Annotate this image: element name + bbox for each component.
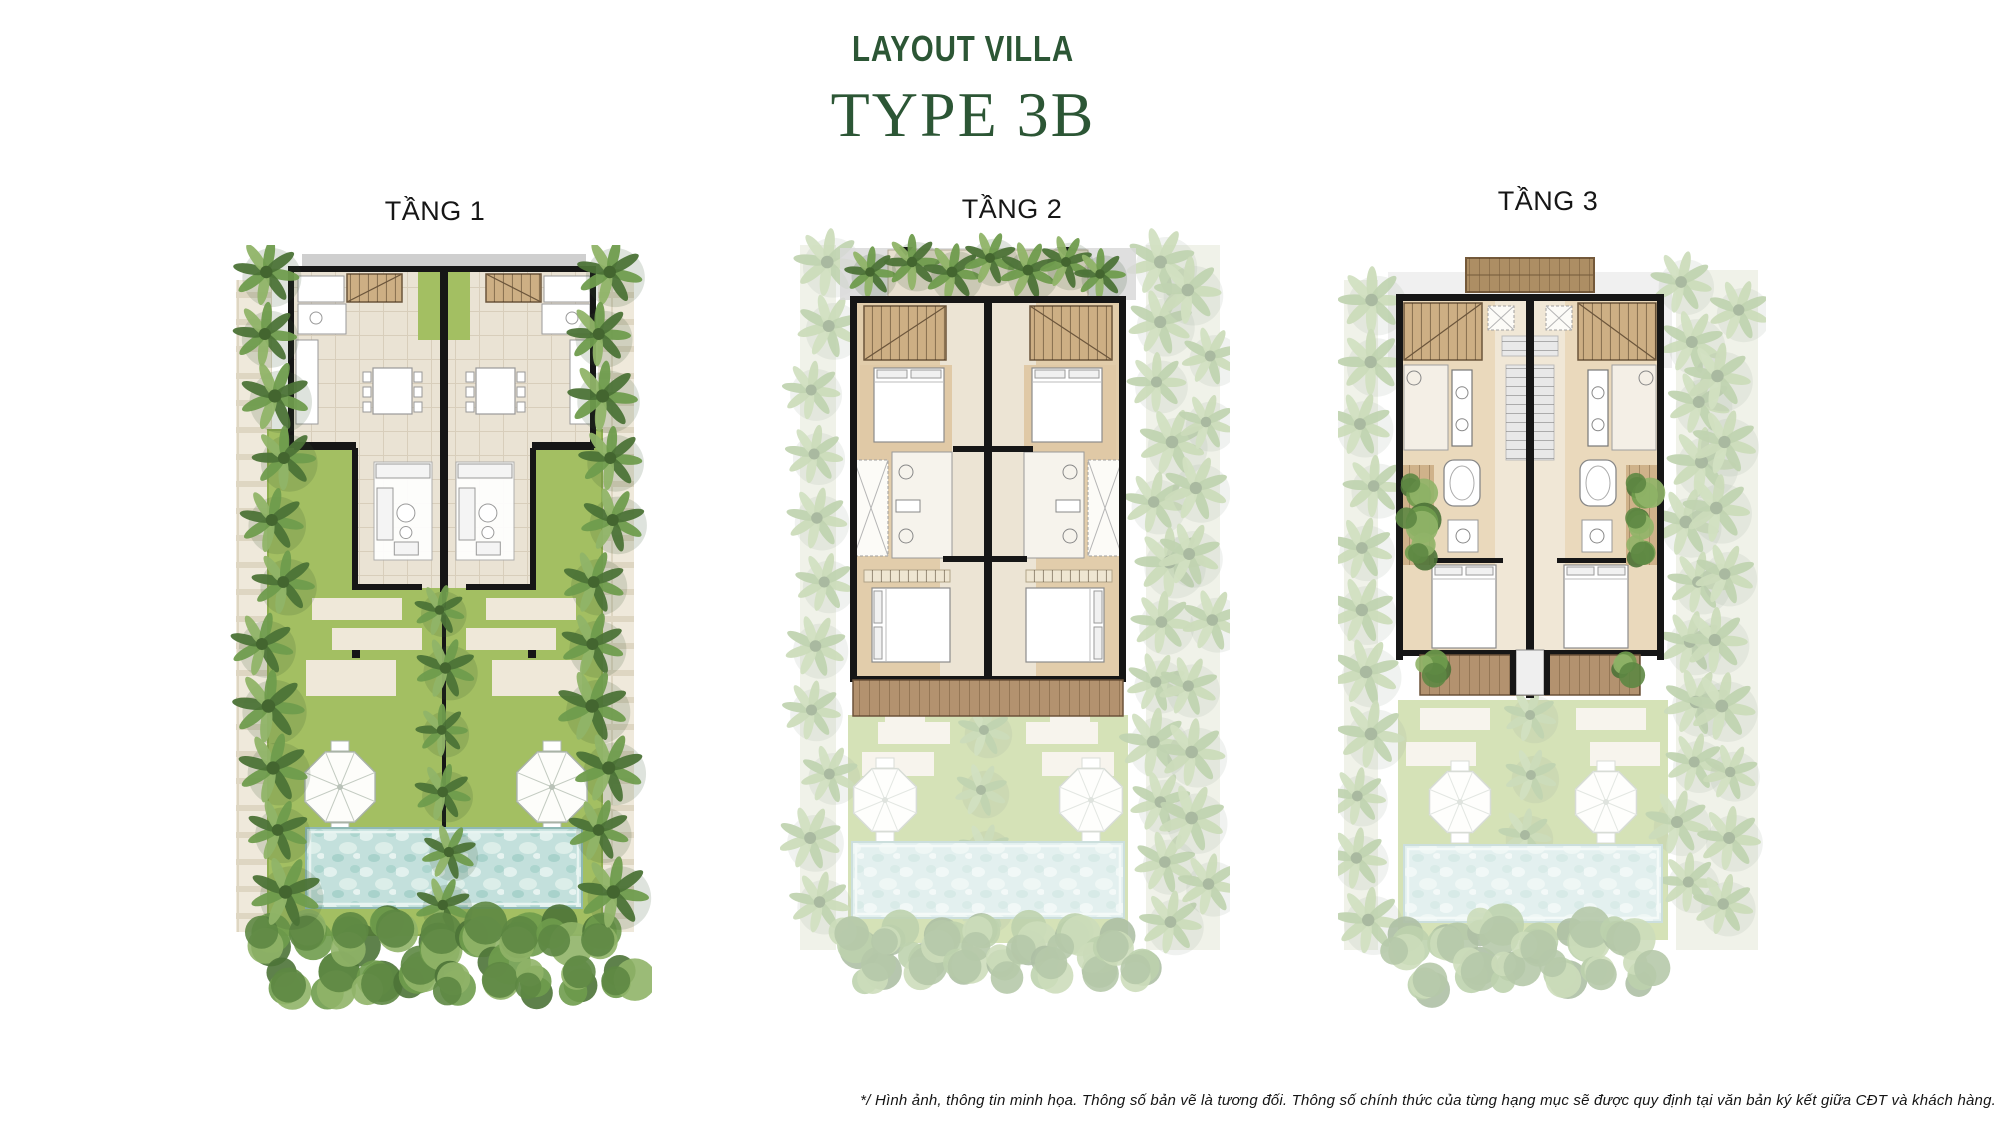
shower-skylight-box xyxy=(854,460,888,556)
bed xyxy=(872,588,950,662)
palm-tree-icon xyxy=(1338,767,1388,827)
floor-1-label: TẦNG 1 xyxy=(325,196,545,227)
shrub-icon xyxy=(1623,950,1670,997)
floor-plan-3 xyxy=(1338,250,1766,1015)
header: LAYOUT VILLA TYPE 3B xyxy=(463,28,1463,152)
vanity-sink xyxy=(1452,370,1472,446)
shrub-icon xyxy=(1408,962,1450,1007)
bed xyxy=(1032,368,1102,442)
staircase xyxy=(486,274,541,302)
staircase xyxy=(1578,303,1656,360)
staircase xyxy=(1030,306,1112,360)
swimming-pool xyxy=(1404,845,1662,922)
page-subtitle: TYPE 3B xyxy=(463,78,1463,152)
palm-tree-icon xyxy=(784,615,848,679)
shrub-icon xyxy=(266,957,311,1009)
disclaimer-note: */ Hình ảnh, thông tin minh họa. Thông s… xyxy=(596,1092,1996,1109)
palm-tree-icon xyxy=(1338,392,1393,457)
swimming-pool xyxy=(852,842,1124,918)
shrub-icon xyxy=(433,961,476,1006)
bathtub xyxy=(1444,460,1480,506)
palm-tree-icon xyxy=(786,487,850,551)
bed xyxy=(1432,565,1496,648)
wood-deck xyxy=(853,680,1123,716)
shower-skylight-box xyxy=(1546,306,1572,330)
villa-building xyxy=(850,296,1126,716)
rooftop-strip xyxy=(1466,258,1594,292)
floor-plan-1 xyxy=(228,245,652,1017)
vanity-sink xyxy=(1588,370,1608,446)
living-room-set xyxy=(456,462,514,560)
living-room-set xyxy=(374,462,432,560)
staircase xyxy=(1404,303,1482,360)
wood-deck xyxy=(1415,649,1645,695)
roof-terrace xyxy=(840,231,1136,302)
palm-tree-icon xyxy=(1338,516,1395,581)
floor-3-label: TẦNG 3 xyxy=(1438,186,1658,217)
floor-plan-2 xyxy=(780,195,1230,995)
bed xyxy=(874,368,944,442)
staircase xyxy=(864,306,946,360)
shower-skylight-box xyxy=(1488,306,1514,330)
shrub-icon xyxy=(601,955,652,1001)
page-title: LAYOUT VILLA xyxy=(553,28,1373,70)
shower-skylight-box xyxy=(1088,460,1122,556)
shrub-icon xyxy=(515,959,553,1009)
bathtub xyxy=(1580,460,1616,506)
bed xyxy=(1026,588,1104,662)
staircase xyxy=(347,274,402,302)
bed xyxy=(1564,565,1628,648)
